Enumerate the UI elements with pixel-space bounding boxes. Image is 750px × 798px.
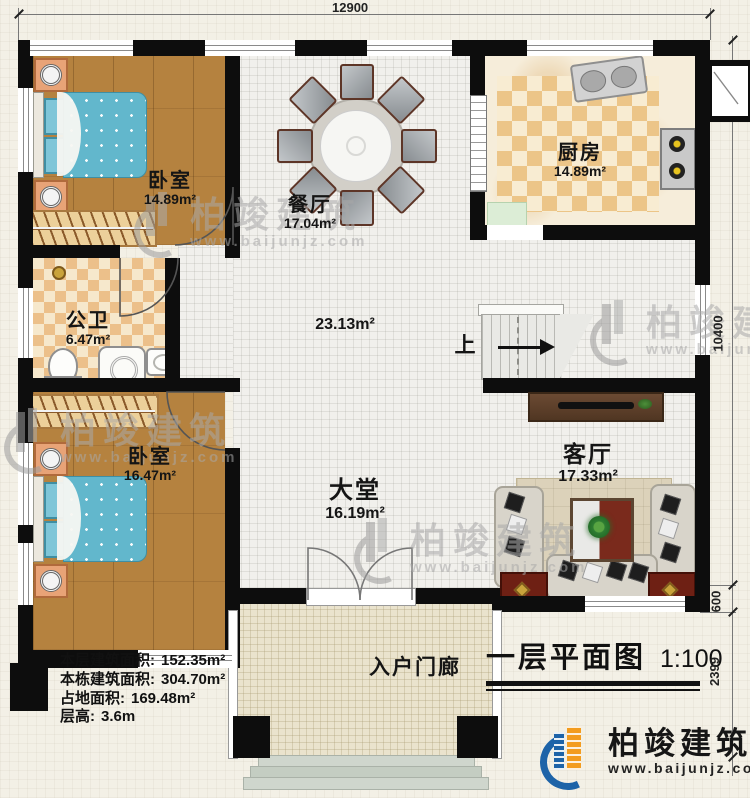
stats-block: 本层建筑面积: 152.35m² 本栋建筑面积: 304.70m² 占地面积: … bbox=[60, 652, 225, 727]
room-area: 17.33m² bbox=[528, 468, 648, 486]
brand-logo-icon bbox=[540, 724, 598, 780]
room-name: 入户门廊 bbox=[335, 656, 495, 680]
stat-label: 占地面积: bbox=[60, 690, 125, 709]
hall-area-label: 23.13m² bbox=[290, 316, 400, 334]
room-name: 大堂 bbox=[300, 478, 410, 505]
brand-url: www.baijunjz.com bbox=[608, 760, 750, 776]
room-name: 客厅 bbox=[528, 442, 648, 468]
stat-row: 层高: 3.6m bbox=[60, 708, 225, 727]
room-area: 16.19m² bbox=[300, 505, 410, 523]
stat-value: 152.35m² bbox=[161, 652, 225, 671]
title-underline-thick bbox=[486, 681, 700, 686]
room-area: 17.04m² bbox=[255, 216, 365, 232]
room-label-bedroom1: 卧室 14.89m² bbox=[115, 170, 225, 208]
stat-label: 本层建筑面积: bbox=[60, 652, 155, 671]
room-area: 14.89m² bbox=[520, 164, 640, 180]
logo-building-orange bbox=[567, 726, 581, 770]
dim-label-right-step: 600 bbox=[708, 591, 723, 613]
brand-name: 柏竣建筑 bbox=[608, 728, 750, 761]
room-label-kitchen: 厨房 14.89m² bbox=[520, 142, 640, 180]
dim-label-right-main: 10400 bbox=[711, 315, 726, 351]
room-name: 厨房 bbox=[520, 142, 640, 164]
stat-row: 占地面积: 169.48m² bbox=[60, 690, 225, 709]
title-underline-thin bbox=[486, 689, 700, 691]
floor-plan-sheet: 柏竣建筑 www.baijunjz.com 柏竣建筑 www.baijunjz.… bbox=[0, 0, 750, 798]
room-area: 16.47m² bbox=[95, 468, 205, 484]
room-name: 公卫 bbox=[33, 310, 143, 332]
room-area: 23.13m² bbox=[290, 316, 400, 334]
stat-value: 169.48m² bbox=[131, 690, 195, 709]
room-label-dining: 餐厅 17.04m² bbox=[255, 194, 365, 232]
stairs-up-label: 上 bbox=[450, 334, 480, 358]
up-text: 上 bbox=[450, 334, 480, 358]
room-label-lobby: 大堂 16.19m² bbox=[300, 478, 410, 523]
legend-swatch bbox=[10, 663, 48, 711]
room-name: 卧室 bbox=[95, 446, 205, 468]
room-name: 餐厅 bbox=[255, 194, 365, 216]
stat-row: 本层建筑面积: 152.35m² bbox=[60, 652, 225, 671]
room-label-bath: 公卫 6.47m² bbox=[33, 310, 143, 348]
stat-row: 本栋建筑面积: 304.70m² bbox=[60, 671, 225, 690]
room-area: 6.47m² bbox=[33, 332, 143, 348]
room-name: 卧室 bbox=[115, 170, 225, 192]
stat-value: 3.6m bbox=[101, 708, 135, 727]
title-block: 一层平面图 1:100 bbox=[486, 634, 723, 691]
brand-logo: 柏竣建筑 www.baijunjz.com bbox=[540, 724, 750, 780]
room-area: 14.89m² bbox=[115, 192, 225, 208]
logo-building-blue bbox=[554, 732, 564, 770]
room-label-porch: 入户门廊 bbox=[335, 656, 495, 680]
dim-label-top: 12900 bbox=[332, 0, 368, 15]
plan-title: 一层平面图 bbox=[486, 634, 646, 676]
stat-value: 304.70m² bbox=[161, 671, 225, 690]
room-label-living: 客厅 17.33m² bbox=[528, 442, 648, 486]
stat-label: 本栋建筑面积: bbox=[60, 671, 155, 690]
stat-label: 层高: bbox=[60, 708, 95, 727]
room-label-bedroom2: 卧室 16.47m² bbox=[95, 446, 205, 484]
dim-label-right-porch: 2399 bbox=[707, 657, 722, 686]
